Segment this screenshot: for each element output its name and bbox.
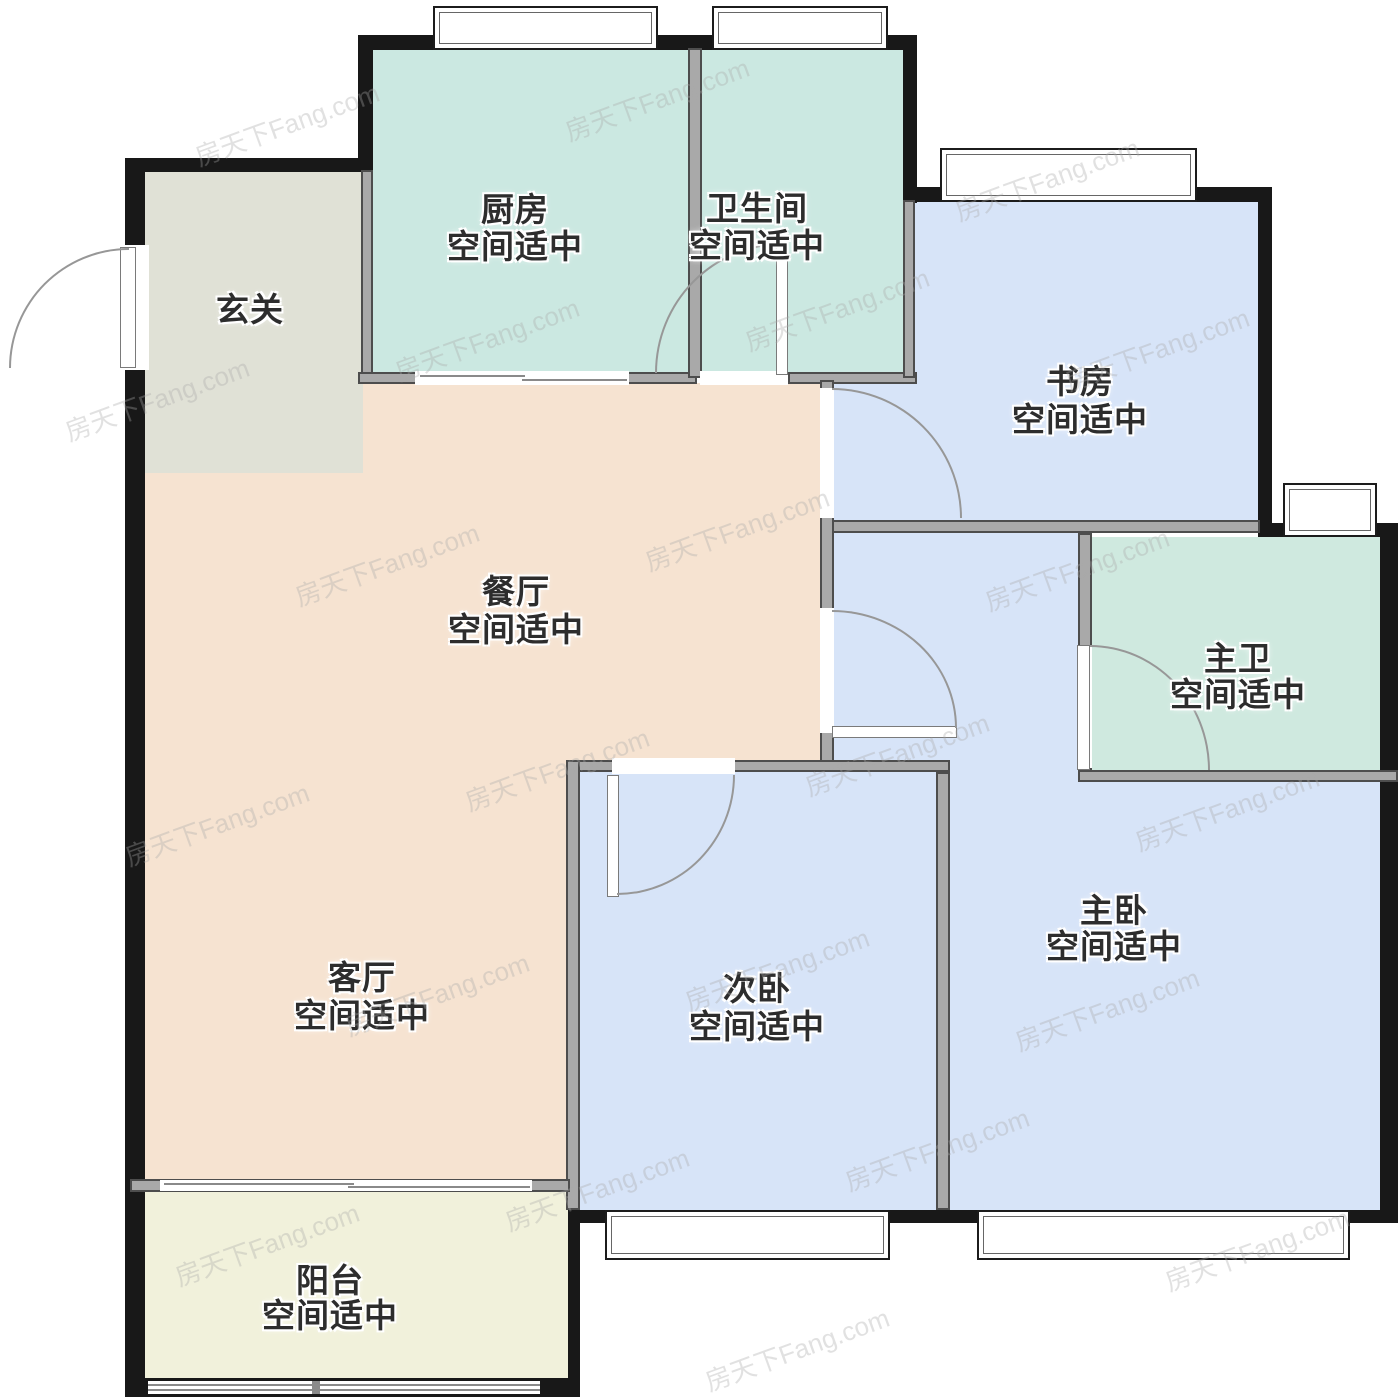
floor-plan: 玄关 厨房 空间适中 卫生间 空间适中 书房 空间适中 餐厅 空间适中 主卫 空… [0,0,1398,1400]
study-window [940,148,1197,202]
kitchen-sliding-door-line2 [522,379,627,381]
secondbed-window [605,1210,890,1260]
wall-top-seg1 [358,35,433,50]
wall-kitchen-bottom-left [358,372,417,384]
wall-secondbed-left [566,760,580,1210]
wall-left-main [125,368,145,1397]
wall-balcony-right [568,1210,580,1390]
entry-door-arc [9,248,129,368]
wall-bathroom-right-lower [903,200,915,378]
balcony-sliding-door-line1 [164,1183,354,1185]
label-dining-status: 空间适中 [448,603,584,651]
bathroom-window [712,6,888,50]
wall-bottom-seg2 [890,1210,977,1223]
label-entry: 玄关 [216,283,284,331]
wall-bottom-seg3 [1350,1210,1398,1223]
wall-bedroom-divider [936,772,950,1210]
label-masterbed-status: 空间适中 [1046,920,1182,968]
kitchen-sliding-door [415,371,629,385]
wall-kitchen-left [358,35,373,172]
bathroom-door-opening [700,371,788,385]
room-master-bedroom-area [950,772,1380,1210]
wall-masterbath-top-seg1 [1258,523,1283,537]
label-balcony-status: 空间适中 [262,1289,398,1337]
wall-secondbed-top-right [733,760,950,772]
wall-entry-top [125,158,363,172]
label-bathroom-status: 空间适中 [689,219,825,267]
balcony-window-line1 [148,1384,540,1386]
secondbed-door-opening [612,758,735,774]
kitchen-window [433,6,658,50]
balcony-window [148,1381,540,1394]
masterbath-door-leaf [1077,645,1090,770]
wall-top-seg2 [658,35,712,50]
balcony-sliding-door-line2 [348,1186,530,1188]
balcony-window-line2 [148,1389,540,1391]
label-masterbath-status: 空间适中 [1170,668,1306,716]
masterbed-window [977,1210,1350,1260]
label-kitchen-status: 空间适中 [447,220,583,268]
label-study-status: 空间适中 [1012,393,1148,441]
wall-bathroom-right [903,35,917,203]
kitchen-sliding-door-line1 [420,375,525,377]
masterbath-window [1283,483,1377,537]
wall-masterbath-left-top [1078,533,1092,647]
wall-study-bottom [832,520,1260,533]
watermark: 房天下Fang.com [700,1298,895,1399]
wall-right-main [1380,523,1398,1223]
wall-entry-kitchen-divider [361,170,373,375]
label-living-status: 空间适中 [294,989,430,1037]
balcony-window-mullion [312,1381,320,1394]
wall-bathroom-bottom [788,372,917,384]
wall-masterbath-bottom [1078,770,1398,782]
label-secondbed-status: 空间适中 [689,1000,825,1048]
wall-study-top-seg1 [917,187,940,202]
wall-kitchen-bottom-right [627,372,697,384]
wall-study-right [1258,187,1272,537]
